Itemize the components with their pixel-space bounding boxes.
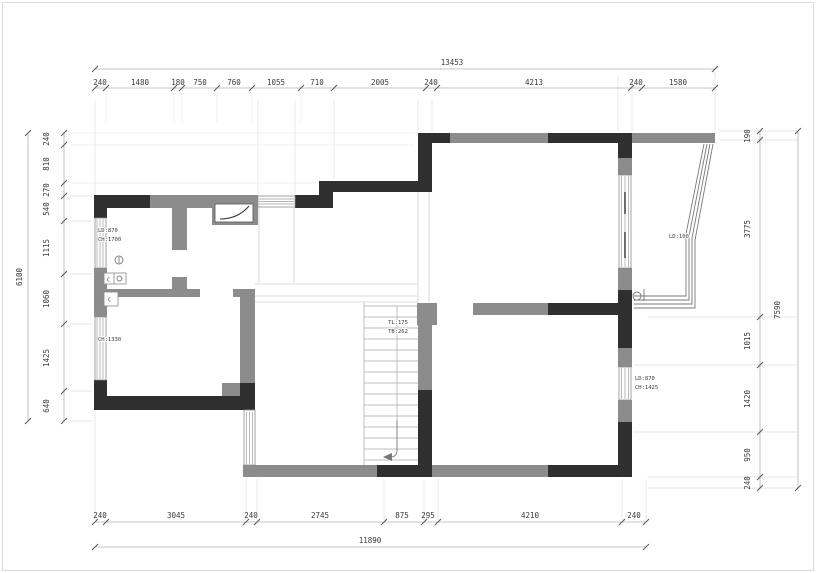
sheet-frame: [2, 2, 814, 571]
floor-plan-sheet: C C LD:870 CH:1700 CH:1330 TL:175 TB:262…: [0, 0, 816, 573]
